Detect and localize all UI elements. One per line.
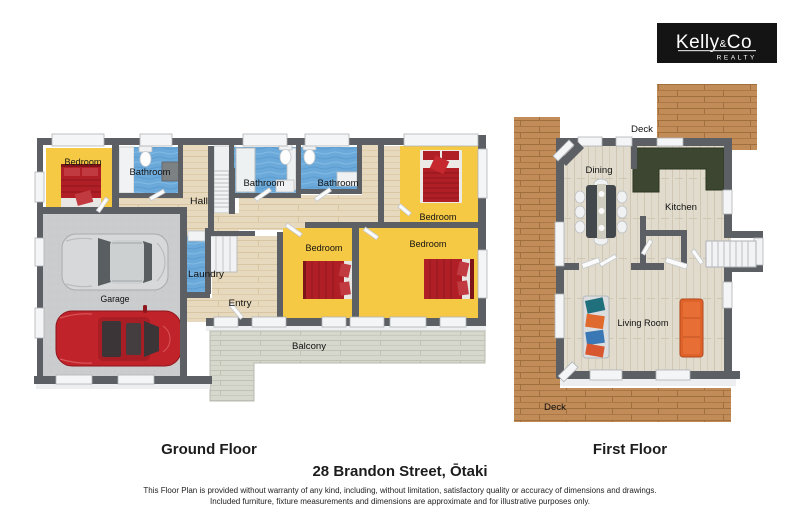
svg-text:First Floor: First Floor <box>593 441 667 458</box>
svg-text:Living Room: Living Room <box>618 318 669 328</box>
svg-text:Kitchen: Kitchen <box>665 202 697 212</box>
svg-text:Bedroom: Bedroom <box>420 212 457 222</box>
svg-text:Ground Floor: Ground Floor <box>161 441 257 458</box>
svg-text:REALTY: REALTY <box>717 55 757 62</box>
svg-text:Bathroom: Bathroom <box>130 167 171 177</box>
svg-text:Bathroom: Bathroom <box>318 178 359 188</box>
svg-text:Dining: Dining <box>586 165 613 175</box>
svg-text:Bedroom: Bedroom <box>65 157 102 167</box>
svg-text:Balcony: Balcony <box>292 341 327 351</box>
svg-text:Deck: Deck <box>631 124 654 134</box>
svg-text:Entry: Entry <box>229 298 253 308</box>
svg-text:Bedroom: Bedroom <box>410 239 447 249</box>
svg-text:Bedroom: Bedroom <box>306 243 343 253</box>
svg-text:Laundry: Laundry <box>188 269 225 279</box>
svg-text:Garage: Garage <box>101 294 130 304</box>
svg-text:Deck: Deck <box>544 402 567 412</box>
svg-text:28 Brandon Street, Ōtaki: 28 Brandon Street, Ōtaki <box>312 463 487 480</box>
svg-text:Kelly&Co: Kelly&Co <box>676 32 752 53</box>
svg-text:Bathroom: Bathroom <box>244 178 285 188</box>
svg-text:This Floor Plan is provided wi: This Floor Plan is provided without warr… <box>143 486 656 495</box>
svg-text:Hall: Hall <box>190 196 208 206</box>
svg-text:Included furniture, fixture me: Included furniture, fixture measurements… <box>210 497 590 506</box>
